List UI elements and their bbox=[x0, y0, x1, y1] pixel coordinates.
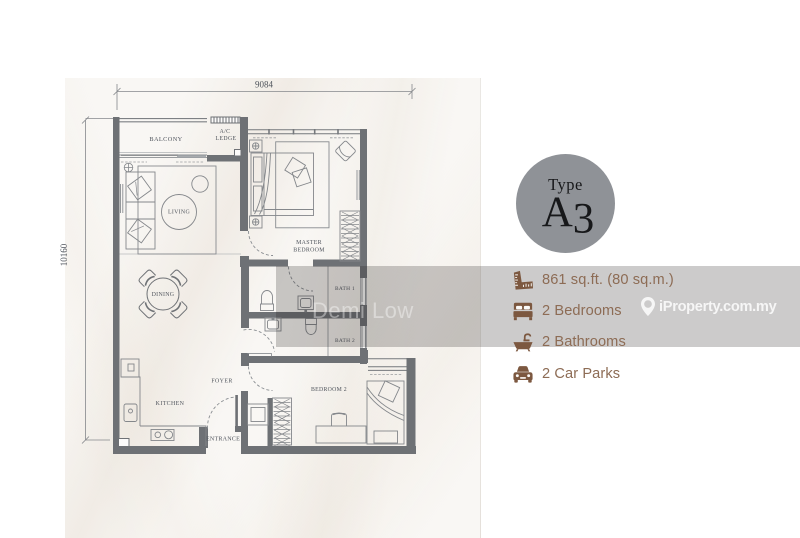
svg-text:BEDROOM: BEDROOM bbox=[293, 248, 325, 254]
svg-text:BALCONY: BALCONY bbox=[149, 136, 182, 143]
svg-text:A/C: A/C bbox=[220, 129, 231, 135]
svg-text:LIVING: LIVING bbox=[168, 209, 191, 215]
svg-text:DINING: DINING bbox=[152, 292, 175, 298]
svg-text:KITCHEN: KITCHEN bbox=[156, 401, 185, 407]
svg-text:FOYER: FOYER bbox=[211, 379, 232, 385]
svg-text:ENTRANCE: ENTRANCE bbox=[206, 436, 240, 442]
svg-text:MASTER: MASTER bbox=[296, 240, 322, 246]
svg-text:9084: 9084 bbox=[255, 80, 274, 90]
svg-text:LEDGE: LEDGE bbox=[216, 136, 237, 142]
svg-text:BEDROOM 2: BEDROOM 2 bbox=[311, 387, 347, 393]
svg-text:10160: 10160 bbox=[59, 243, 69, 266]
